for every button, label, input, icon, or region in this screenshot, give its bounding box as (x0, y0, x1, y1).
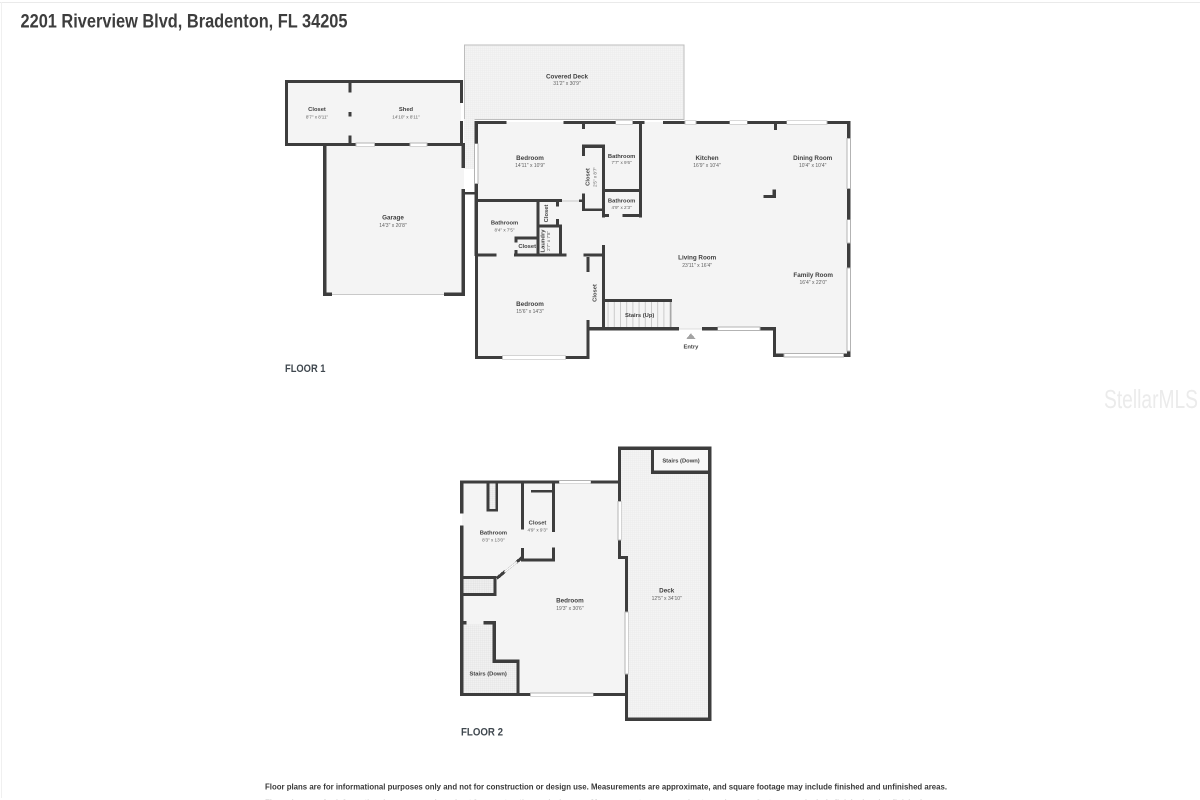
svg-text:Stairs (Down): Stairs (Down) (662, 458, 699, 464)
svg-text:15'6" x 14'3": 15'6" x 14'3" (516, 309, 544, 315)
svg-text:Closet: Closet (529, 520, 547, 526)
svg-text:Closet: Closet (593, 284, 599, 302)
svg-text:Bedroom: Bedroom (516, 155, 544, 162)
svg-text:31'2" x 30'9": 31'2" x 30'9" (553, 81, 581, 87)
svg-text:8'3" x 13'0": 8'3" x 13'0" (482, 538, 505, 543)
svg-text:16'9" x 10'4": 16'9" x 10'4" (693, 163, 721, 169)
svg-text:19'3" x 30'6": 19'3" x 30'6" (556, 606, 584, 612)
svg-text:FLOOR 1: FLOOR 1 (285, 363, 326, 375)
svg-text:Deck: Deck (659, 587, 675, 594)
svg-text:Bathroom: Bathroom (608, 199, 635, 205)
svg-text:16'4" x 22'0": 16'4" x 22'0" (799, 280, 827, 286)
svg-text:Entry: Entry (683, 344, 699, 350)
svg-text:14'3" x 20'8": 14'3" x 20'8" (379, 223, 407, 229)
svg-text:Covered Deck: Covered Deck (546, 73, 588, 80)
svg-text:4'9" x 2'3": 4'9" x 2'3" (612, 205, 632, 210)
svg-text:7'7" x 9'6": 7'7" x 9'6" (612, 160, 632, 165)
svg-text:8'7" x 8'11": 8'7" x 8'11" (306, 115, 329, 120)
svg-text:Bedroom: Bedroom (556, 597, 584, 604)
svg-text:14'11" x 10'9": 14'11" x 10'9" (515, 163, 545, 169)
svg-text:14'10" x 8'11": 14'10" x 8'11" (392, 115, 420, 120)
svg-text:12'5" x 34'10": 12'5" x 34'10" (652, 596, 682, 602)
svg-text:23'11" x 16'4": 23'11" x 16'4" (682, 263, 712, 269)
svg-text:Kitchen: Kitchen (695, 155, 718, 162)
svg-text:Closet: Closet (518, 244, 536, 250)
svg-text:Dining Room: Dining Room (793, 155, 833, 162)
svg-text:2'5" x 8'7": 2'5" x 8'7" (592, 167, 597, 187)
svg-text:Garage: Garage (382, 214, 404, 221)
svg-text:Stairs (Up): Stairs (Up) (625, 313, 654, 319)
svg-text:4'9" x 9'3": 4'9" x 9'3" (527, 527, 547, 532)
svg-text:2201 Riverview Blvd, Bradenton: 2201 Riverview Blvd, Bradenton, FL 34205 (21, 12, 348, 33)
svg-text:10'4" x 10'4": 10'4" x 10'4" (799, 163, 827, 169)
svg-text:FLOOR 2: FLOOR 2 (461, 727, 503, 739)
svg-text:StellarMLS: StellarMLS (1104, 384, 1198, 414)
svg-text:Closet: Closet (586, 168, 592, 186)
svg-text:Floor plans are for informatio: Floor plans are for informational purpos… (265, 782, 947, 792)
svg-text:Living Room: Living Room (678, 254, 717, 261)
svg-text:2'7" x 7'8": 2'7" x 7'8" (546, 231, 551, 251)
svg-text:Closet: Closet (544, 205, 550, 223)
svg-text:Stairs (Down): Stairs (Down) (470, 672, 507, 678)
svg-text:Bathroom: Bathroom (491, 221, 518, 227)
svg-text:Bathroom: Bathroom (480, 530, 507, 536)
svg-text:8'4" x 7'5": 8'4" x 7'5" (494, 228, 514, 233)
svg-text:Shed: Shed (399, 107, 414, 113)
svg-text:Closet: Closet (308, 107, 326, 113)
svg-text:Family Room: Family Room (793, 272, 833, 279)
svg-text:Bedroom: Bedroom (516, 301, 544, 308)
